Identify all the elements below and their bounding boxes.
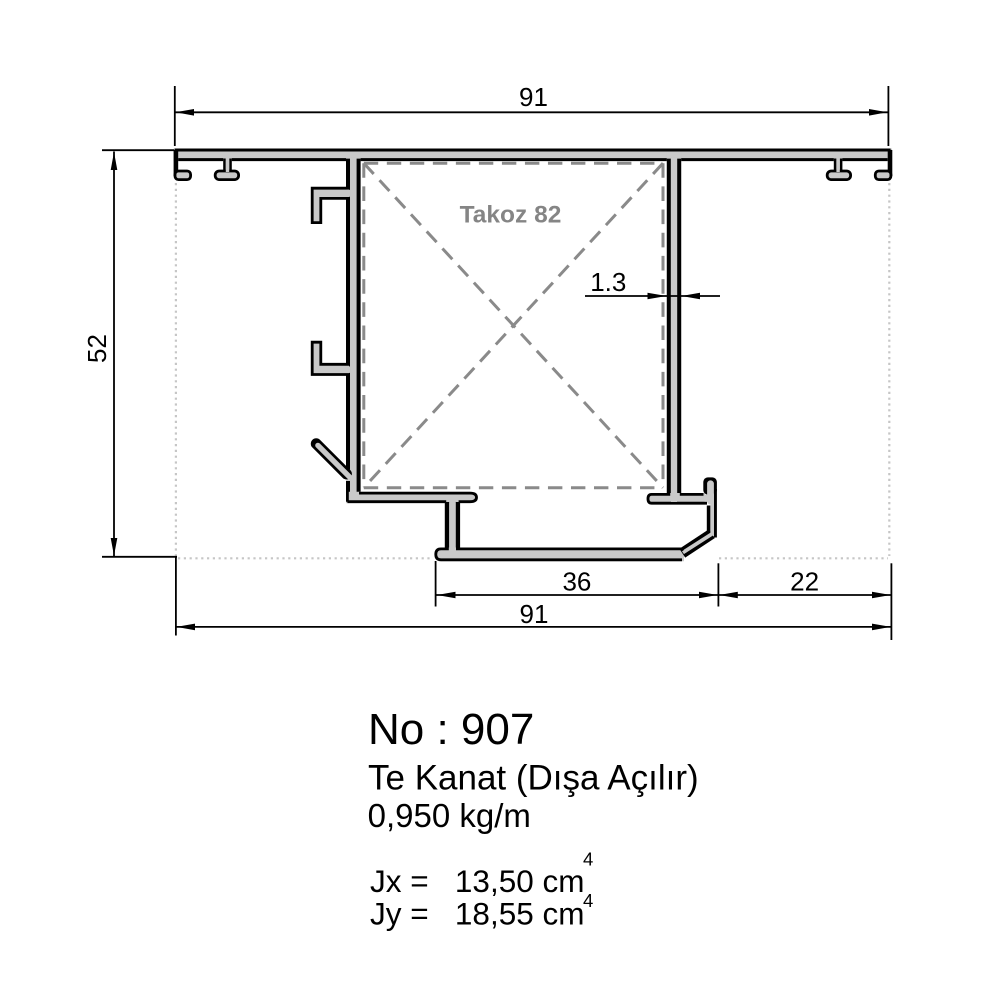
svg-text:1.3: 1.3 — [590, 267, 626, 297]
svg-text:No : 907: No : 907 — [368, 705, 534, 754]
svg-text:4: 4 — [583, 890, 593, 911]
svg-text:91: 91 — [520, 599, 549, 629]
svg-text:22: 22 — [790, 567, 819, 597]
svg-text:52: 52 — [82, 334, 112, 363]
svg-text:91: 91 — [519, 82, 548, 112]
svg-text:36: 36 — [562, 567, 591, 597]
svg-text:Jx = 13,50 cm: Jx = 13,50 cm — [370, 863, 584, 899]
svg-text:0,950 kg/m: 0,950 kg/m — [368, 797, 531, 834]
svg-text:Takoz 82: Takoz 82 — [460, 202, 562, 229]
svg-text:4: 4 — [583, 849, 593, 870]
svg-text:Te Kanat (Dışa Açılır): Te Kanat (Dışa Açılır) — [368, 759, 699, 798]
svg-text:Jy = 18,55 cm: Jy = 18,55 cm — [370, 896, 584, 932]
